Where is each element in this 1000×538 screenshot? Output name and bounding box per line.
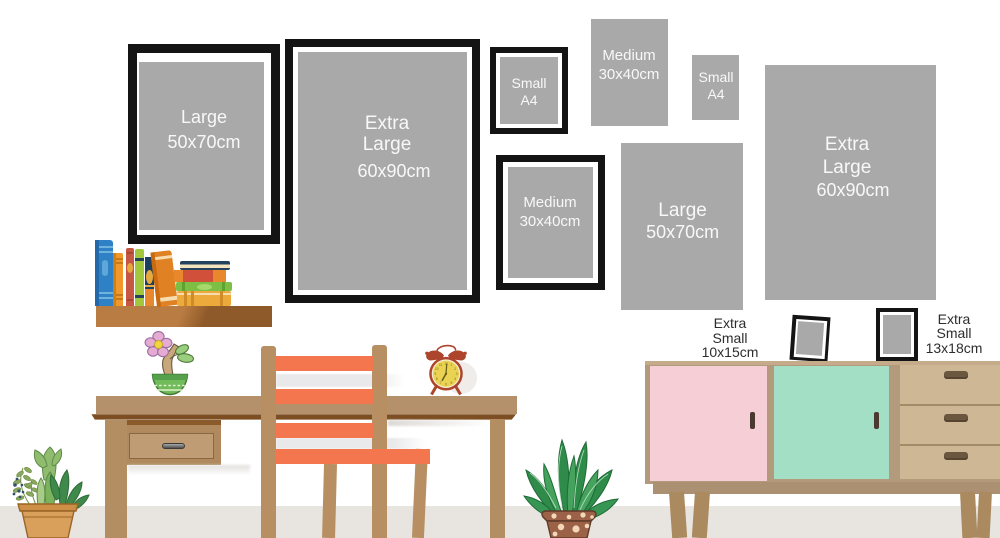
svg-text:3: 3 — [456, 372, 458, 376]
svg-text:2: 2 — [454, 367, 456, 371]
svg-text:10: 10 — [435, 367, 439, 371]
svg-text:1: 1 — [451, 363, 453, 367]
svg-text:8: 8 — [436, 377, 438, 381]
svg-text:7: 7 — [440, 381, 442, 385]
svg-text:9: 9 — [435, 372, 437, 376]
svg-text:4: 4 — [454, 377, 456, 381]
svg-text:6: 6 — [445, 382, 447, 386]
svg-text:11: 11 — [439, 363, 443, 367]
svg-text:5: 5 — [451, 381, 453, 385]
